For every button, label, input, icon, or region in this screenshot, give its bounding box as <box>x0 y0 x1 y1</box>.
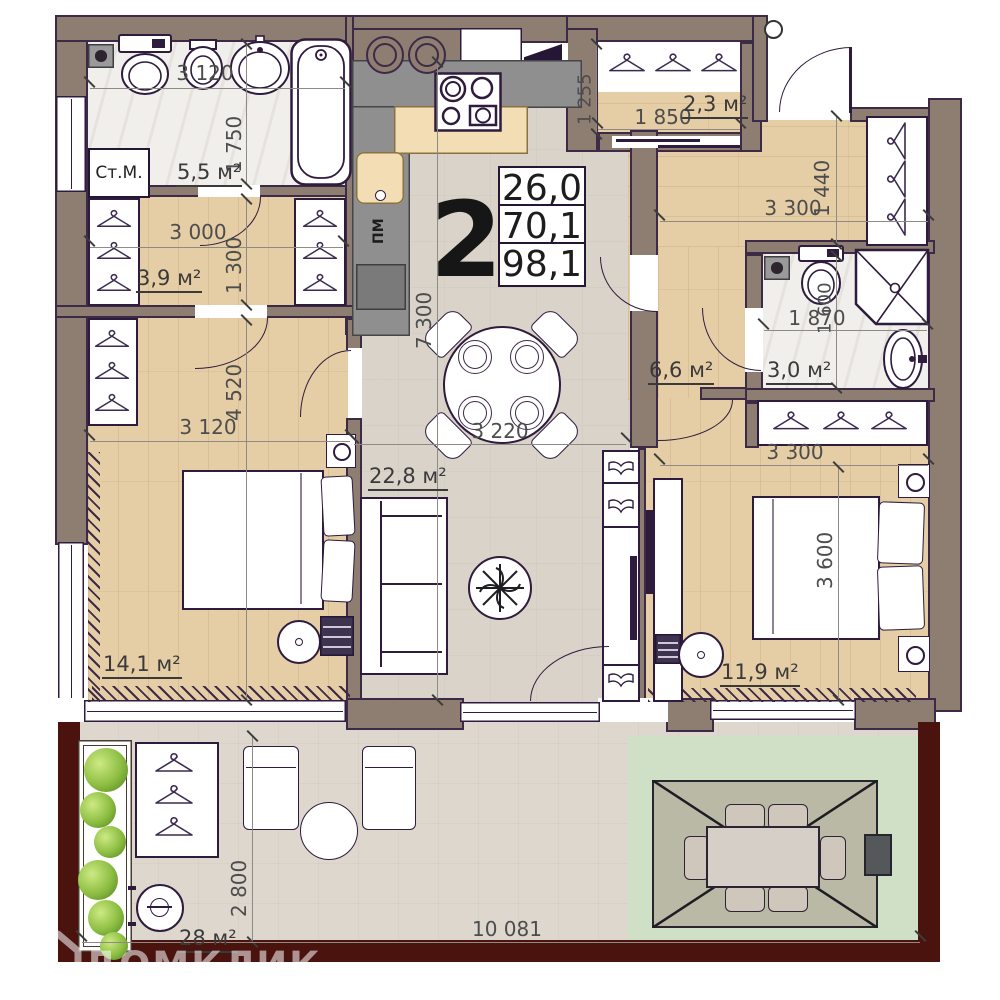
outdoor-chair-icon <box>768 886 808 912</box>
watermark: ДОМКЛИК <box>84 944 321 987</box>
dim-label: 2 800 <box>226 844 252 932</box>
tick-mark <box>128 922 136 926</box>
door-opening <box>195 305 267 318</box>
radiator-hatch <box>88 452 100 702</box>
dim-label: 3 300 <box>740 440 850 464</box>
window <box>710 700 856 720</box>
sofa-seat-line <box>380 583 442 585</box>
hanger-icon <box>698 52 740 74</box>
shelf-line <box>604 482 638 484</box>
dim-line <box>354 444 626 445</box>
lamp-icon <box>906 646 925 665</box>
nightstand <box>898 464 930 498</box>
dim-label: 3 120 <box>148 415 268 439</box>
pillow <box>877 501 925 565</box>
dim-label: 3 600 <box>812 516 838 604</box>
wall <box>55 15 88 545</box>
round-table-icon <box>136 884 184 932</box>
dresser-icon <box>320 616 354 656</box>
wall <box>666 698 714 732</box>
shelf-line <box>604 664 638 666</box>
plant-icon <box>466 554 534 622</box>
dresser-icon <box>655 634 681 664</box>
bed-fold-line <box>772 499 774 634</box>
dim-line <box>90 88 345 89</box>
bush-icon <box>94 826 126 858</box>
pillow <box>877 565 925 631</box>
window <box>460 702 600 722</box>
bbq-icon <box>864 834 892 876</box>
dim-label: 4 520 <box>222 350 246 434</box>
hanger-icon <box>92 328 132 350</box>
hanger-icon <box>868 410 910 432</box>
table-center-line <box>147 906 172 908</box>
outdoor-chair-icon <box>820 836 846 880</box>
hanger-icon <box>886 194 908 240</box>
terrace-wall <box>58 722 80 962</box>
dim-line <box>660 221 928 222</box>
dim-line <box>660 465 928 466</box>
tv-icon <box>646 510 653 594</box>
dim-label: 3 120 <box>140 61 270 85</box>
radiator-hatch <box>92 686 350 700</box>
hanger-icon <box>300 208 340 230</box>
dishwasher <box>356 264 406 310</box>
book-icon <box>608 498 634 514</box>
sliding-door-leaf <box>658 145 740 148</box>
area-label-bedroom1: 14,1 м² <box>102 652 182 679</box>
tv-icon <box>630 556 637 640</box>
bush-icon <box>88 900 124 936</box>
stool-icon <box>277 620 321 664</box>
wall <box>928 98 962 712</box>
plate-icon <box>458 340 492 374</box>
bed-fold-line <box>300 473 302 604</box>
dim-line <box>90 247 343 248</box>
radiator-hatch <box>648 688 916 702</box>
hanger-icon <box>152 816 196 838</box>
rooms-count: 2 <box>430 188 502 292</box>
dim-line <box>246 199 247 305</box>
dim-label: 1 255 <box>574 66 596 132</box>
window <box>84 700 346 722</box>
nightstand <box>898 636 930 672</box>
lamp-icon <box>906 473 925 492</box>
dim-line <box>598 129 740 130</box>
dim-line <box>90 441 350 442</box>
dim-line <box>836 116 837 244</box>
dim-line <box>246 320 247 700</box>
nightstand <box>326 434 356 468</box>
window <box>56 96 86 192</box>
plate-icon <box>510 340 544 374</box>
tv-unit <box>653 478 683 702</box>
dim-line <box>838 467 839 700</box>
dim-label: 1 600 <box>814 268 836 348</box>
dim-label: 10 081 <box>442 916 572 942</box>
bush-icon <box>80 792 116 828</box>
shelf-line <box>604 526 638 528</box>
hanger-icon <box>92 360 132 382</box>
lamp-icon <box>333 443 351 461</box>
area-label-hallway2: 6,6 м² <box>648 358 714 385</box>
dim-label: 1 440 <box>810 148 834 228</box>
stove-icon <box>434 72 502 132</box>
pillow <box>320 539 355 603</box>
dim-line <box>437 62 438 700</box>
dim-line <box>764 330 927 331</box>
wall <box>346 698 464 730</box>
armchair-icon <box>362 746 416 830</box>
bush-icon <box>78 860 118 900</box>
burner-icon <box>408 36 446 74</box>
drain-icon <box>375 190 386 201</box>
info-area-total: 98,1 <box>498 242 586 287</box>
vent-icon <box>88 44 114 68</box>
window-corner <box>58 698 84 722</box>
washbasin-icon <box>882 326 930 392</box>
sofa-icon <box>360 497 448 675</box>
coffee-table-icon <box>300 802 358 860</box>
wall <box>700 387 748 400</box>
bush-icon <box>84 748 128 792</box>
column-marker <box>764 20 783 39</box>
sofa-armrest-line <box>380 651 442 653</box>
burner-icon <box>366 36 404 74</box>
floor-plan: ПМ Ст.М. <box>0 0 1000 1000</box>
washing-machine: Ст.М. <box>88 148 150 198</box>
tick-mark <box>128 886 136 890</box>
sofa-armrest-line <box>380 515 442 517</box>
entrance-door-arc <box>779 47 852 112</box>
hanger-icon <box>652 52 694 74</box>
outdoor-table-icon <box>706 826 820 888</box>
outdoor-chair-icon <box>725 886 765 912</box>
hanger-icon <box>94 208 134 230</box>
hanger-icon <box>300 272 340 294</box>
terrace-wall <box>918 722 940 962</box>
hanger-icon <box>770 410 812 432</box>
book-icon <box>608 672 634 688</box>
hanger-icon <box>820 410 862 432</box>
hanger-icon <box>94 272 134 294</box>
area-label-hallway1: 3,9 м² <box>136 266 202 293</box>
hanger-icon <box>606 52 648 74</box>
hanger-icon <box>152 752 196 774</box>
pillow <box>320 475 355 537</box>
book-icon <box>608 460 634 476</box>
hanger-icon <box>92 392 132 414</box>
sliding-door-leaf <box>616 139 700 142</box>
dim-label: 3 220 <box>448 419 552 443</box>
area-label-bathroom1: 5,5 м² <box>176 160 242 187</box>
dishwasher-label: ПМ <box>366 214 392 248</box>
dim-label: 1 300 <box>222 226 246 304</box>
hanger-icon <box>300 240 340 262</box>
hanger-icon <box>94 240 134 262</box>
bed <box>182 470 324 610</box>
hanger-icon <box>152 784 196 806</box>
vent-icon <box>764 256 790 280</box>
kitchen-sink-icon <box>356 152 404 204</box>
area-label-bedroom2: 11,9 м² <box>720 660 800 687</box>
house-logo-icon <box>34 928 82 986</box>
entrance-door-leaf <box>849 47 852 113</box>
window <box>58 542 84 720</box>
area-label-kitchen-living: 22,8 м² <box>368 464 448 491</box>
stool-icon <box>678 632 724 678</box>
bathtub-icon <box>290 38 352 186</box>
area-label-closet: 2,3 м² <box>682 92 748 119</box>
dim-line <box>252 736 253 942</box>
area-label-bathroom2: 3,0 м² <box>766 358 832 385</box>
